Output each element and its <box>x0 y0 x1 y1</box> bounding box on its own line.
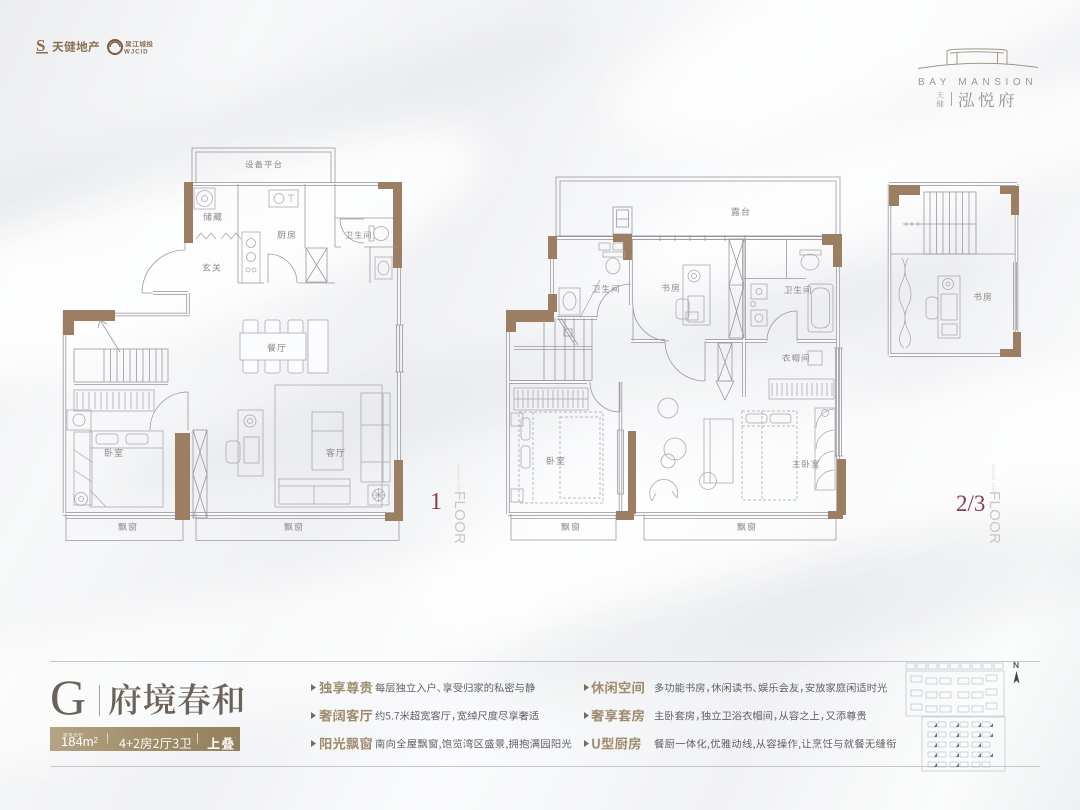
svg-text:1: 1 <box>430 489 442 515</box>
svg-text:FLOOR: FLOOR <box>986 491 1003 544</box>
svg-text:2/3: 2/3 <box>956 491 985 516</box>
svg-text:HOUSE TYPE: HOUSE TYPE <box>991 464 996 495</box>
svg-text:FLOOR: FLOOR <box>451 491 468 544</box>
svg-text:BAY MANSION: BAY MANSION <box>918 77 1037 88</box>
svg-text:HOUSE TYPE: HOUSE TYPE <box>456 464 461 495</box>
svg-text:N: N <box>1013 660 1019 670</box>
svg-text:WJCID: WJCID <box>124 49 148 56</box>
